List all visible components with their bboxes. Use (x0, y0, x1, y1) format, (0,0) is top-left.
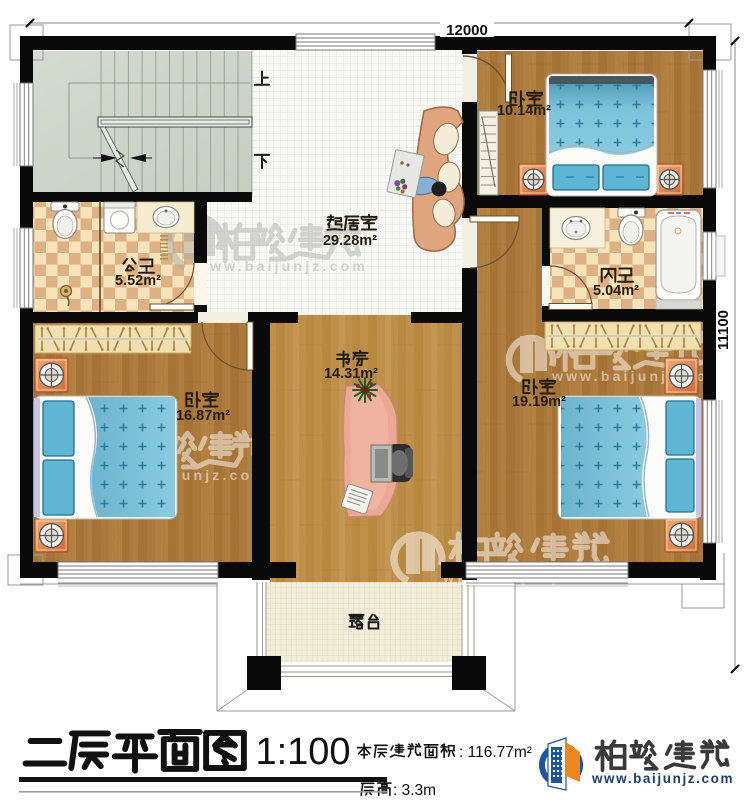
svg-text:10.14m²: 10.14m² (497, 103, 551, 119)
svg-text:5.04m²: 5.04m² (593, 283, 639, 299)
svg-text:14.31m²: 14.31m² (324, 366, 378, 382)
svg-text:: 3.3m: : 3.3m (393, 782, 436, 799)
svg-text:11100: 11100 (715, 310, 732, 350)
svg-text:19.19m²: 19.19m² (512, 394, 566, 410)
svg-text:5.52m²: 5.52m² (115, 273, 161, 289)
svg-text:12000: 12000 (446, 22, 488, 39)
svg-text:1:100: 1:100 (255, 731, 350, 773)
svg-text:16.87m²: 16.87m² (176, 408, 230, 424)
svg-text:www.baijunjz.com: www.baijunjz.com (591, 771, 734, 786)
svg-text:www.baijunjz.com: www.baijunjz.com (195, 258, 368, 274)
svg-text:: 116.77m²: : 116.77m² (459, 744, 532, 761)
svg-text:29.28m²: 29.28m² (323, 233, 377, 249)
